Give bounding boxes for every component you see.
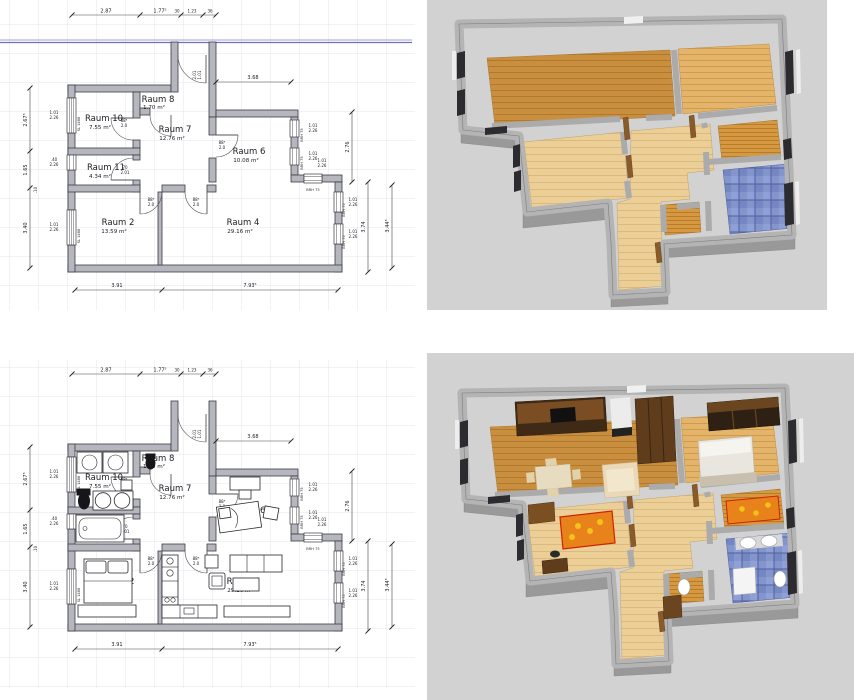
room-label: Raum 10 [85,114,123,124]
svg-text:2.26: 2.26 [50,227,59,232]
svg-text:7.55 m²: 7.55 m² [89,124,111,131]
bed-orange-small [726,496,780,524]
cooktop [550,407,576,423]
panel-3d-view-empty[interactable] [427,0,854,312]
washing-machine [733,567,756,595]
cabinet [528,502,555,524]
svg-text:2.26: 2.26 [50,162,59,167]
svg-text:BRH 75: BRH 75 [342,203,346,216]
toilet [678,579,690,595]
svg-text:30: 30 [174,9,180,14]
room-label: Raum 2 [102,218,135,228]
desk [542,558,568,574]
svg-text:29.16 m²: 29.16 m² [227,228,252,235]
svg-text:3.74: 3.74 [361,221,367,232]
svg-text:BRH 75: BRH 75 [306,188,319,192]
panel-2d-plan-empty[interactable]: Raum 10 7.55 m² Raum 8 1.70 m² Raum 7 12… [0,0,427,330]
svg-text:3.68: 3.68 [247,75,258,81]
room-label: Raum 8 [142,95,175,105]
svg-text:36: 36 [207,9,213,14]
svg-text:3.44⁵: 3.44⁵ [385,219,391,232]
svg-text:1.77⁵: 1.77⁵ [153,9,166,15]
svg-text:3.40: 3.40 [23,222,29,233]
svg-text:SL 1488: SL 1488 [77,228,81,243]
svg-text:12.76 m²: 12.76 m² [159,135,184,142]
svg-text:SL 1488: SL 1488 [77,116,81,131]
svg-text:2.76: 2.76 [345,141,351,152]
svg-text:2.0: 2.0 [121,123,128,128]
svg-text:1.01: 1.01 [197,70,202,79]
svg-text:2.67⁵: 2.67⁵ [23,113,29,126]
room-label: Raum 4 [227,218,260,228]
svg-text:BRH 75: BRH 75 [300,156,304,169]
floor-bathroom-tiles [723,164,793,234]
dining-table [535,464,572,490]
room-label: Raum 7 [159,125,192,135]
desk-chair [550,551,560,558]
toilet [774,571,786,587]
svg-text:2.0: 2.0 [148,202,155,207]
floor-living-room [487,50,675,126]
svg-text:2.0: 2.0 [193,202,200,207]
svg-text:BRH 75: BRH 75 [342,235,346,248]
fridge [610,397,632,429]
svg-text:BRH 75: BRH 75 [300,128,304,141]
room-label: Raum 11 [87,163,125,173]
svg-text:2.87: 2.87 [100,9,111,15]
floor-bedroom [678,44,776,114]
room-label: Raum 6 [233,147,266,157]
svg-text:2.26: 2.26 [318,163,327,168]
cad-workspace: Raum 10 7.55 m² Raum 8 1.70 m² Raum 7 12… [0,0,854,700]
kitchen-tall-unit [635,396,676,464]
svg-text:2.26: 2.26 [349,234,358,239]
sink [761,536,777,547]
svg-text:2.26: 2.26 [349,202,358,207]
floor-room6 [524,132,629,208]
svg-text:2.26: 2.26 [309,128,318,133]
svg-text:4.34 m²: 4.34 m² [89,173,111,180]
svg-text:1.70 m²: 1.70 m² [143,104,165,111]
panel-2d-plan-furnished[interactable] [0,355,427,700]
drawing-grid [0,0,415,310]
svg-text:.10: .10 [33,186,38,193]
svg-text:7.93⁵: 7.93⁵ [243,283,256,289]
svg-text:2.26: 2.26 [309,156,318,161]
svg-text:1.23: 1.23 [188,9,197,14]
panel-3d-view-furnished[interactable] [427,353,854,700]
drawing-grid [0,360,415,688]
svg-text:13.59 m²: 13.59 m² [101,228,126,235]
svg-text:10.08 m²: 10.08 m² [233,157,258,164]
svg-text:2.01: 2.01 [121,170,130,175]
hall-shelf [663,595,682,619]
svg-text:3.91: 3.91 [111,283,122,289]
sink [740,538,756,549]
svg-text:2.26: 2.26 [50,115,59,120]
svg-text:1.65: 1.65 [23,164,29,175]
svg-text:2.0: 2.0 [219,145,226,150]
